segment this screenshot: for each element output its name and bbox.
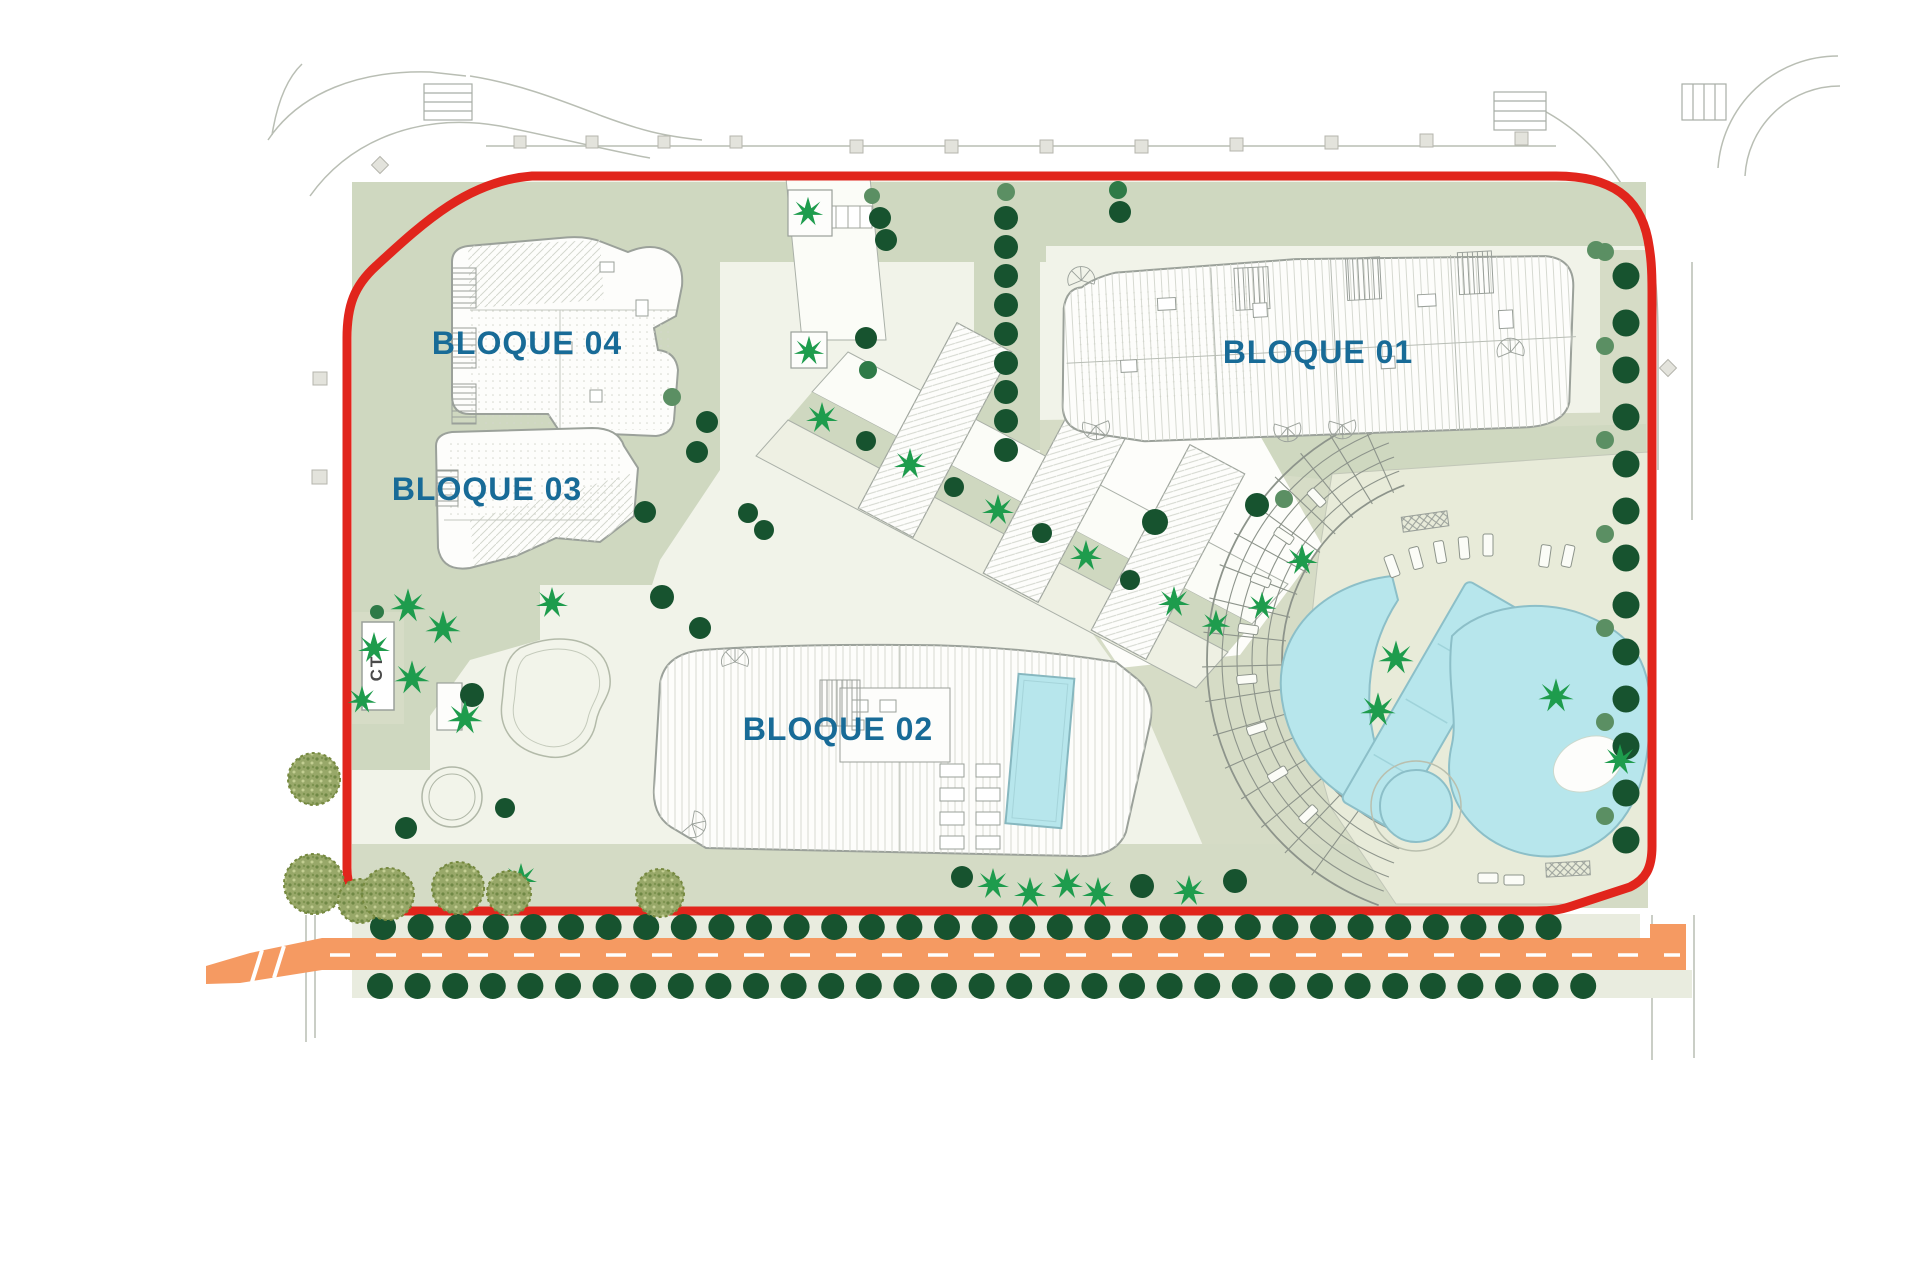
tree-icon — [408, 914, 434, 940]
tree-icon — [994, 409, 1018, 433]
tree-icon — [855, 327, 877, 349]
tree-icon — [1109, 201, 1131, 223]
tree-icon — [1423, 914, 1449, 940]
label-bloque-02: BLOQUE 02 — [743, 711, 933, 747]
tree-icon — [1345, 973, 1371, 999]
tree-icon — [754, 520, 774, 540]
olive-tree-icon — [288, 753, 340, 805]
olive-tree-icon — [636, 869, 684, 917]
tree-icon — [1120, 570, 1140, 590]
planter-box — [437, 683, 462, 730]
tree-icon — [743, 973, 769, 999]
tree-icon — [1269, 973, 1295, 999]
tree-icon — [746, 914, 772, 940]
tree-icon — [1223, 869, 1247, 893]
tree-icon — [1006, 973, 1032, 999]
tree-icon — [1613, 545, 1640, 572]
tree-icon — [1533, 973, 1559, 999]
tree-icon — [818, 973, 844, 999]
tree-icon — [1613, 404, 1640, 431]
tree-icon — [596, 914, 622, 940]
tree-icon — [367, 973, 393, 999]
pool-round — [1380, 770, 1452, 842]
tree-icon — [1109, 181, 1127, 199]
tree-icon — [994, 380, 1018, 404]
tree-icon — [969, 973, 995, 999]
tree-icon — [859, 914, 885, 940]
tree-icon — [1119, 973, 1145, 999]
tree-icon — [934, 914, 960, 940]
tree-icon — [1596, 525, 1614, 543]
label-bloque-03: BLOQUE 03 — [392, 471, 582, 507]
tree-icon — [593, 973, 619, 999]
tree-icon — [994, 322, 1018, 346]
tree-icon — [997, 183, 1015, 201]
tree-icon — [1613, 263, 1640, 290]
tree-icon — [994, 438, 1018, 462]
garden-circle — [422, 767, 482, 827]
tree-icon — [1272, 914, 1298, 940]
tree-icon — [1613, 310, 1640, 337]
tree-icon — [630, 973, 656, 999]
tree-icon — [1157, 973, 1183, 999]
tree-icon — [495, 798, 515, 818]
tree-icon — [663, 388, 681, 406]
olive-tree-icon — [432, 862, 484, 914]
tree-icon — [1596, 713, 1614, 731]
tree-icon — [480, 973, 506, 999]
tree-icon — [1613, 592, 1640, 619]
tree-icon — [517, 973, 543, 999]
tree-icon — [1613, 780, 1640, 807]
tree-icon — [1460, 914, 1486, 940]
label-ct: CT — [367, 655, 386, 682]
tree-icon — [650, 585, 674, 609]
tree-icon — [1385, 914, 1411, 940]
tree-icon — [893, 973, 919, 999]
tree-icon — [634, 501, 656, 523]
olive-tree-icon — [362, 868, 414, 920]
tree-icon — [1613, 498, 1640, 525]
tree-icon — [370, 605, 384, 619]
tree-icon — [1236, 674, 1257, 685]
tree-icon — [931, 973, 957, 999]
tree-icon — [1613, 357, 1640, 384]
tree-icon — [1420, 973, 1446, 999]
tree-icon — [972, 914, 998, 940]
tree-icon — [1307, 973, 1333, 999]
tree-icon — [1232, 973, 1258, 999]
tree-icon — [483, 914, 509, 940]
tree-icon — [1081, 973, 1107, 999]
tree-icon — [1047, 914, 1073, 940]
tree-icon — [520, 914, 546, 940]
tree-icon — [555, 973, 581, 999]
tree-icon — [1084, 914, 1110, 940]
site-plan-page: BLOQUE 04 BLOQUE 03 BLOQUE 01 BLOQUE 02 … — [0, 0, 1920, 1280]
tree-icon — [445, 914, 471, 940]
tree-icon — [1382, 973, 1408, 999]
tree-icon — [1197, 914, 1223, 940]
tree-icon — [696, 411, 718, 433]
tree-icon — [994, 264, 1018, 288]
tree-icon — [442, 973, 468, 999]
building-bloque-02 — [654, 645, 1152, 856]
tree-icon — [994, 351, 1018, 375]
street-pergolas — [424, 84, 1726, 130]
tree-icon — [1498, 914, 1524, 940]
tree-icon — [944, 477, 964, 497]
tree-icon — [405, 973, 431, 999]
tree-icon — [1310, 914, 1336, 940]
tree-icon — [859, 361, 877, 379]
tree-icon — [1536, 914, 1562, 940]
tree-icon — [633, 914, 659, 940]
tree-icon — [708, 914, 734, 940]
tree-icon — [1613, 686, 1640, 713]
olive-tree-icon — [284, 854, 344, 914]
tree-icon — [671, 914, 697, 940]
tree-icon — [1457, 973, 1483, 999]
tree-icon — [686, 441, 708, 463]
tree-icon — [781, 973, 807, 999]
tree-icon — [668, 973, 694, 999]
tree-icon — [1348, 914, 1374, 940]
tree-icon — [1613, 639, 1640, 666]
tree-icon — [1245, 493, 1269, 517]
tree-icon — [1613, 451, 1640, 478]
tree-icon — [864, 188, 880, 204]
label-bloque-04: BLOQUE 04 — [432, 325, 622, 361]
tree-icon — [784, 914, 810, 940]
olive-tree-icon — [487, 871, 531, 915]
tree-icon — [896, 914, 922, 940]
tree-icon — [460, 683, 484, 707]
tree-icon — [1122, 914, 1148, 940]
tree-icon — [1130, 874, 1154, 898]
tree-icon — [951, 866, 973, 888]
tree-icon — [1044, 973, 1070, 999]
tree-icon — [994, 235, 1018, 259]
sun-lounger-icon — [1236, 674, 1257, 685]
tree-icon — [856, 431, 876, 451]
deck-grate — [1546, 861, 1591, 877]
tree-icon — [1160, 914, 1186, 940]
tree-icon — [395, 817, 417, 839]
tree-icon — [1142, 509, 1168, 535]
tree-icon — [1009, 914, 1035, 940]
tree-icon — [869, 207, 891, 229]
rooftop-pool — [1005, 674, 1074, 828]
site-plan-canvas: BLOQUE 04 BLOQUE 03 BLOQUE 01 BLOQUE 02 … — [0, 0, 1920, 1280]
tree-icon — [1596, 337, 1614, 355]
tree-column-center — [994, 206, 1018, 462]
tree-icon — [1587, 241, 1605, 259]
tree-icon — [1235, 914, 1261, 940]
tree-icon — [875, 229, 897, 251]
tree-icon — [821, 914, 847, 940]
tree-icon — [689, 617, 711, 639]
tree-icon — [738, 503, 758, 523]
tree-icon — [1613, 827, 1640, 854]
tree-icon — [1570, 973, 1596, 999]
tree-icon — [994, 206, 1018, 230]
tree-icon — [856, 973, 882, 999]
tree-icon — [1032, 523, 1052, 543]
tree-icon — [1596, 807, 1614, 825]
tree-icon — [1495, 973, 1521, 999]
tree-icon — [705, 973, 731, 999]
label-bloque-01: BLOQUE 01 — [1223, 334, 1413, 370]
tree-icon — [1194, 973, 1220, 999]
tree-icon — [1275, 490, 1293, 508]
tree-icon — [558, 914, 584, 940]
tree-icon — [1596, 431, 1614, 449]
tree-icon — [1596, 619, 1614, 637]
tree-icon — [994, 293, 1018, 317]
